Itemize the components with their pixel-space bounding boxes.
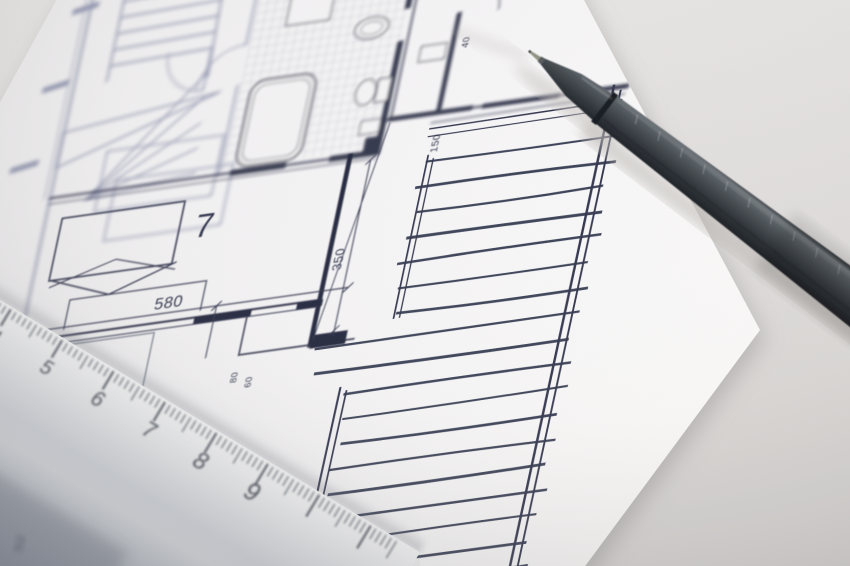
floor-plan-photo: 7 580 350 80 60 150 40 456789 2 — [0, 0, 850, 566]
photo-canvas: 7 580 350 80 60 150 40 456789 2 — [0, 0, 850, 566]
